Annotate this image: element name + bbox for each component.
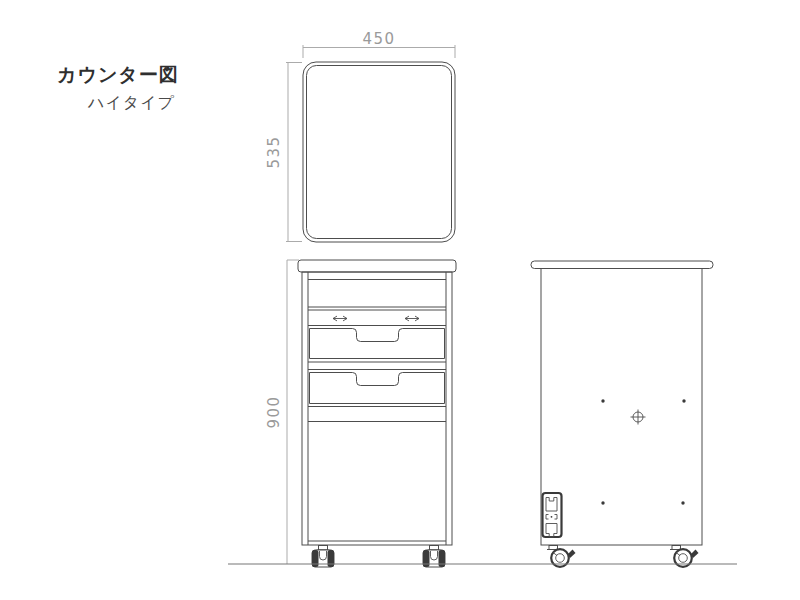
caster-stem bbox=[430, 546, 439, 551]
outlet-housing bbox=[543, 493, 562, 537]
caster-stem bbox=[319, 546, 328, 551]
dimension-top-width: 450 bbox=[303, 30, 455, 58]
dimension-line bbox=[286, 63, 302, 242]
side-view bbox=[531, 261, 713, 567]
drawer1-front-with-handle-recess bbox=[310, 329, 445, 359]
screw-holes bbox=[601, 399, 685, 504]
top-view-inner-edge bbox=[307, 66, 452, 239]
front-shelf-edge bbox=[308, 307, 446, 310]
dimension-line bbox=[287, 260, 299, 564]
dimension-height: 900 bbox=[265, 260, 299, 564]
side-body-panel bbox=[541, 269, 702, 546]
front-top-slab bbox=[298, 260, 456, 272]
top-view-outer-edge bbox=[303, 62, 455, 242]
dimension-top-depth: 535 bbox=[265, 63, 302, 242]
crosshair-fitting-icon bbox=[631, 410, 646, 425]
power-outlet-box bbox=[543, 493, 562, 537]
slide-arrow-icon bbox=[333, 316, 347, 321]
dimension-value-width: 450 bbox=[362, 30, 395, 48]
drawer2-front-with-handle-recess bbox=[310, 373, 445, 404]
technical-drawing: 450 535 bbox=[0, 0, 800, 600]
drawing-sheet: カウンター図 ハイタイプ 450 535 bbox=[0, 0, 800, 600]
dimension-value-height: 900 bbox=[265, 395, 283, 428]
side-top-slab bbox=[531, 261, 713, 269]
dimension-value-depth: 535 bbox=[265, 135, 283, 168]
front-body bbox=[302, 272, 452, 545]
front-view bbox=[298, 260, 456, 567]
front-side-frames bbox=[308, 272, 446, 545]
top-view bbox=[303, 62, 455, 242]
slide-arrow-icon bbox=[405, 316, 419, 321]
